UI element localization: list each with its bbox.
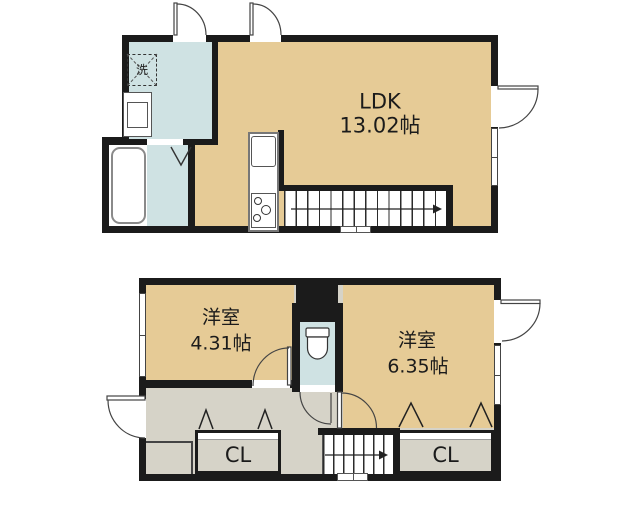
ldk-label: LDK (359, 92, 401, 113)
upper-right-door-icon (498, 86, 538, 128)
stove-burner-3 (253, 214, 261, 222)
vanity-sink (123, 92, 152, 137)
upper-top-door-1-icon (174, 3, 206, 35)
lower-right-door-opening (494, 300, 501, 343)
ldk-size-label: 13.02帖 (339, 116, 420, 137)
lower-right-window (494, 345, 501, 405)
bedroom-small-size-label: 4.31帖 (190, 335, 251, 354)
toilet-floor (300, 322, 335, 385)
bedroom-small-window (139, 293, 146, 377)
closet-left-track (198, 433, 278, 440)
bedroom-small-label: 洋室 (202, 309, 240, 328)
bathroom-ldk-wall (188, 145, 195, 226)
bedroom-small-door-sill (252, 380, 290, 388)
upper-right-door-opening (491, 86, 498, 127)
stove-burner-2 (261, 205, 271, 215)
closet-right-label: CL (400, 443, 491, 467)
upper-right-window (491, 128, 498, 186)
lower-right-door-icon (501, 300, 540, 341)
bathroom-door-sill (147, 139, 183, 145)
bedroom-large-size-label: 6.35帖 (387, 358, 448, 377)
upper-top-door-sill-2 (250, 35, 281, 42)
upper-stairs (284, 191, 446, 226)
floor-plan: 洗 LDK 13.02帖 CL (0, 0, 640, 512)
washroom-ldk-wall (212, 42, 218, 145)
bedroom-large-label: 洋室 (398, 332, 436, 351)
closet-right-track (400, 433, 491, 440)
lower-bottom-window (337, 473, 368, 481)
closet-right: CL (397, 430, 494, 474)
washing-machine-label: 洗 (136, 64, 148, 76)
upper-top-door-2-icon (250, 3, 281, 35)
toilet-door-sill (300, 385, 335, 392)
lower-stairs (322, 435, 393, 474)
upper-stairs-right-wall (446, 185, 453, 233)
upper-bottom-window (340, 226, 371, 233)
entrance-door-opening (139, 399, 146, 438)
lower-stairs-top-wall (318, 428, 400, 435)
bathtub (111, 147, 146, 224)
genkan-step-line-v (191, 441, 193, 474)
closet-left-label: CL (198, 443, 278, 467)
closet-left: CL (195, 430, 281, 474)
genkan-step-line-h (146, 441, 193, 443)
vanity-basin (127, 102, 148, 128)
kitchen-sink (251, 136, 276, 167)
upper-top-door-sill-1 (173, 35, 206, 42)
stove-burner-1 (254, 197, 262, 205)
bathroom-entry-floor (147, 145, 188, 226)
